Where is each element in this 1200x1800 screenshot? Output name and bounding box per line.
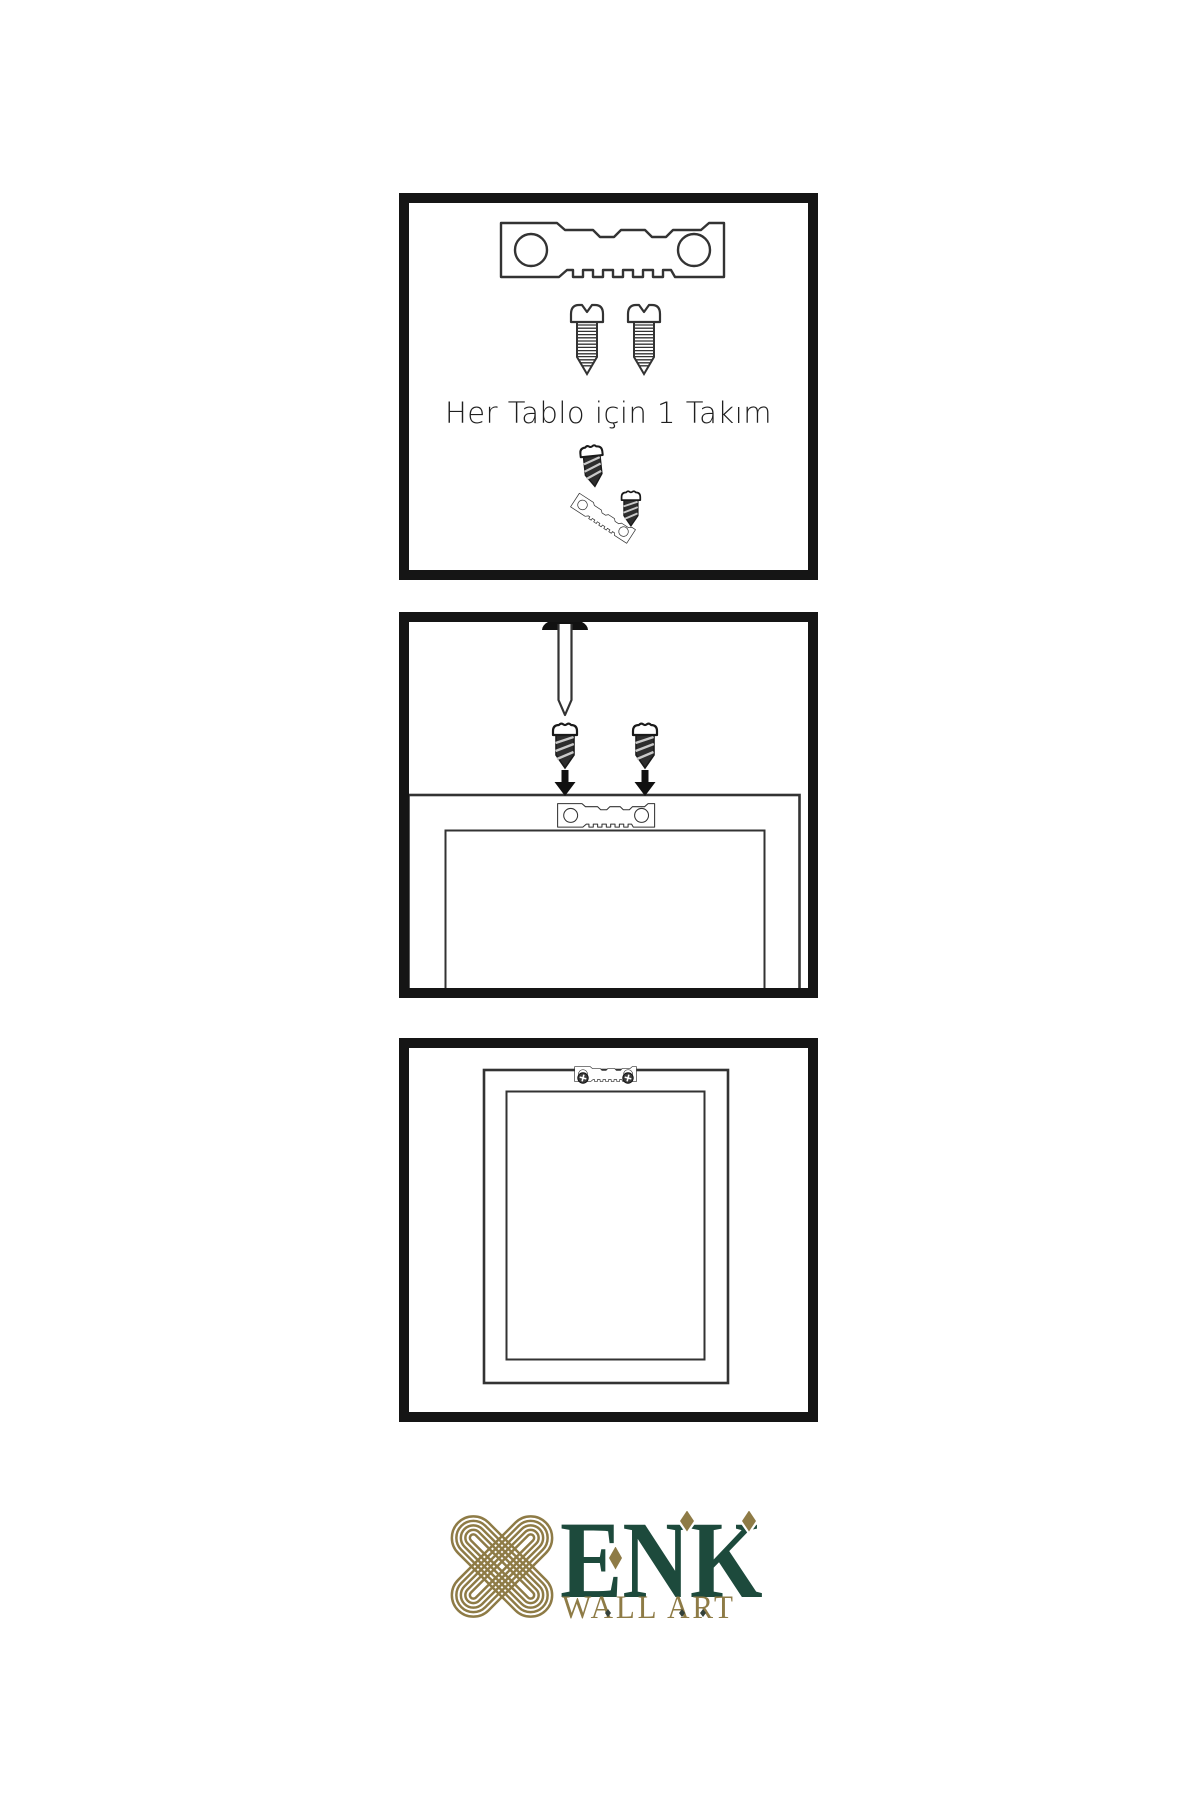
hanging-instruction-sheet: Her Tablo için 1 Takım <box>0 0 1200 1800</box>
screw-icon <box>580 445 606 488</box>
step3-diagram <box>399 1038 818 1422</box>
knot-logo-icon <box>442 1503 562 1630</box>
brand-subtitle: WALL ART <box>562 1592 736 1625</box>
nail-icon <box>559 624 572 715</box>
screw-icon <box>633 724 657 768</box>
step1-diagram <box>399 193 818 580</box>
brand-logo: ENK WALL ART <box>430 1495 810 1690</box>
step2-mounting-panel <box>399 612 818 998</box>
screw-icon <box>622 491 641 526</box>
step1-caption: Her Tablo için 1 Takım <box>399 396 818 430</box>
sawtooth-hanger-icon <box>501 223 724 277</box>
step3-hung-frame-panel <box>399 1038 818 1422</box>
down-arrow-icon <box>635 770 656 796</box>
screw-icon <box>571 305 603 374</box>
screw-icon <box>628 305 660 374</box>
down-arrow-icon <box>555 770 576 796</box>
screw-icon <box>553 724 577 768</box>
phillips-screw-icon <box>623 1073 633 1083</box>
frame-outline <box>484 1070 728 1383</box>
step2-diagram <box>399 612 818 998</box>
phillips-screw-icon <box>578 1073 588 1083</box>
step1-hardware-panel: Her Tablo için 1 Takım <box>399 193 818 580</box>
